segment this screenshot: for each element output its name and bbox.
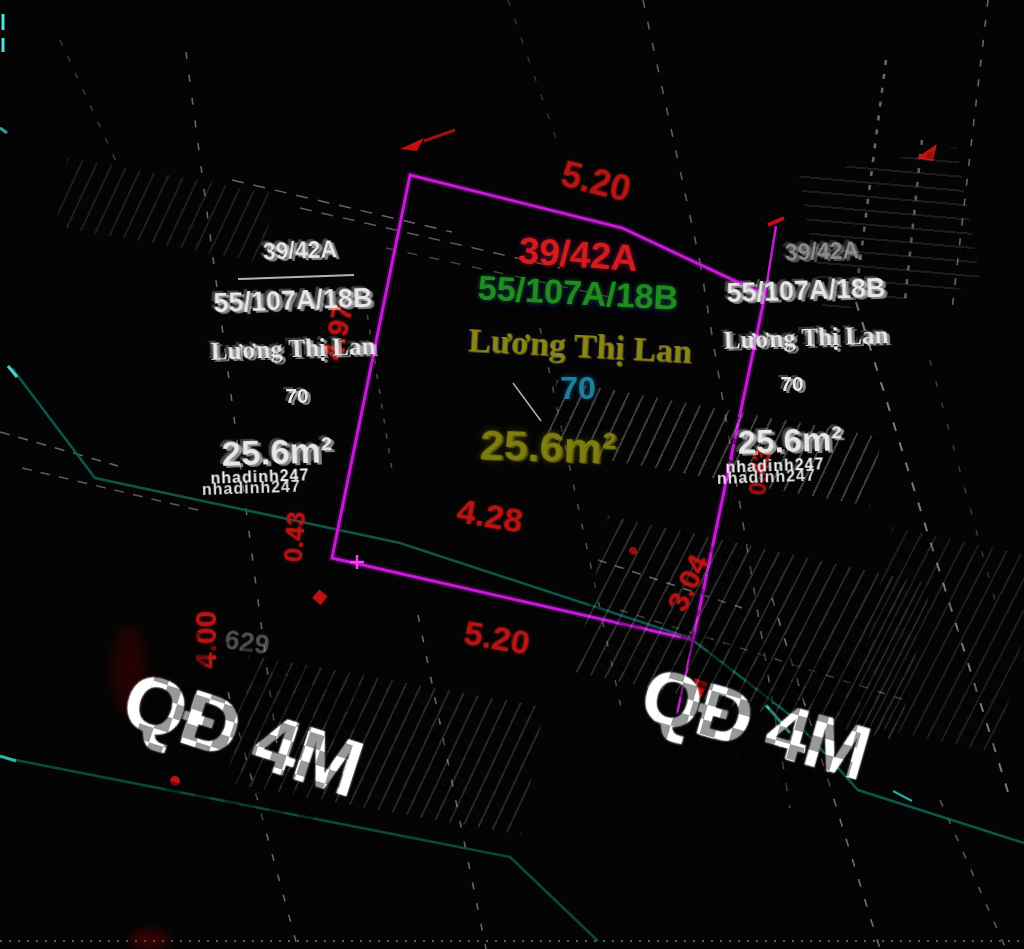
ghost-left-underline	[238, 275, 354, 279]
dimension-corner-label: 0.43	[278, 511, 312, 564]
ghost-left-plot-code: 39/42A	[262, 236, 337, 266]
ghost-left-lot-number: 70	[285, 384, 308, 408]
cyan-corner-ticks	[0, 14, 7, 133]
ghost-number-label: 629	[223, 625, 272, 662]
lot-leader-line	[513, 383, 541, 421]
dashed-grid-lines	[0, 0, 1024, 949]
area-label: 25.6m²	[479, 420, 617, 474]
watermark-right: nhadinh247	[725, 455, 824, 476]
ghost-left-owner: Lương Thị Lan	[210, 332, 375, 366]
ghost-right-lot-number: 70	[780, 372, 803, 396]
watermark-left: nhadinh247	[210, 466, 309, 487]
lot-number-label: 70	[560, 370, 596, 407]
ghost-left-address: 55/107A/18B	[213, 283, 373, 320]
cadastral-map-canvas[interactable]: 5.20 39/42A 55/107A/18B Lương Thị Lan 70…	[0, 0, 1024, 949]
linework-svg	[0, 0, 1024, 949]
dimension-road-edge-label: 4.00	[189, 611, 223, 669]
ghost-right-address: 55/107A/18B	[726, 273, 886, 310]
ghost-right-owner: Lương Thị Lan	[723, 321, 888, 355]
ghost-right-plot-code: 39/42A	[784, 237, 859, 267]
